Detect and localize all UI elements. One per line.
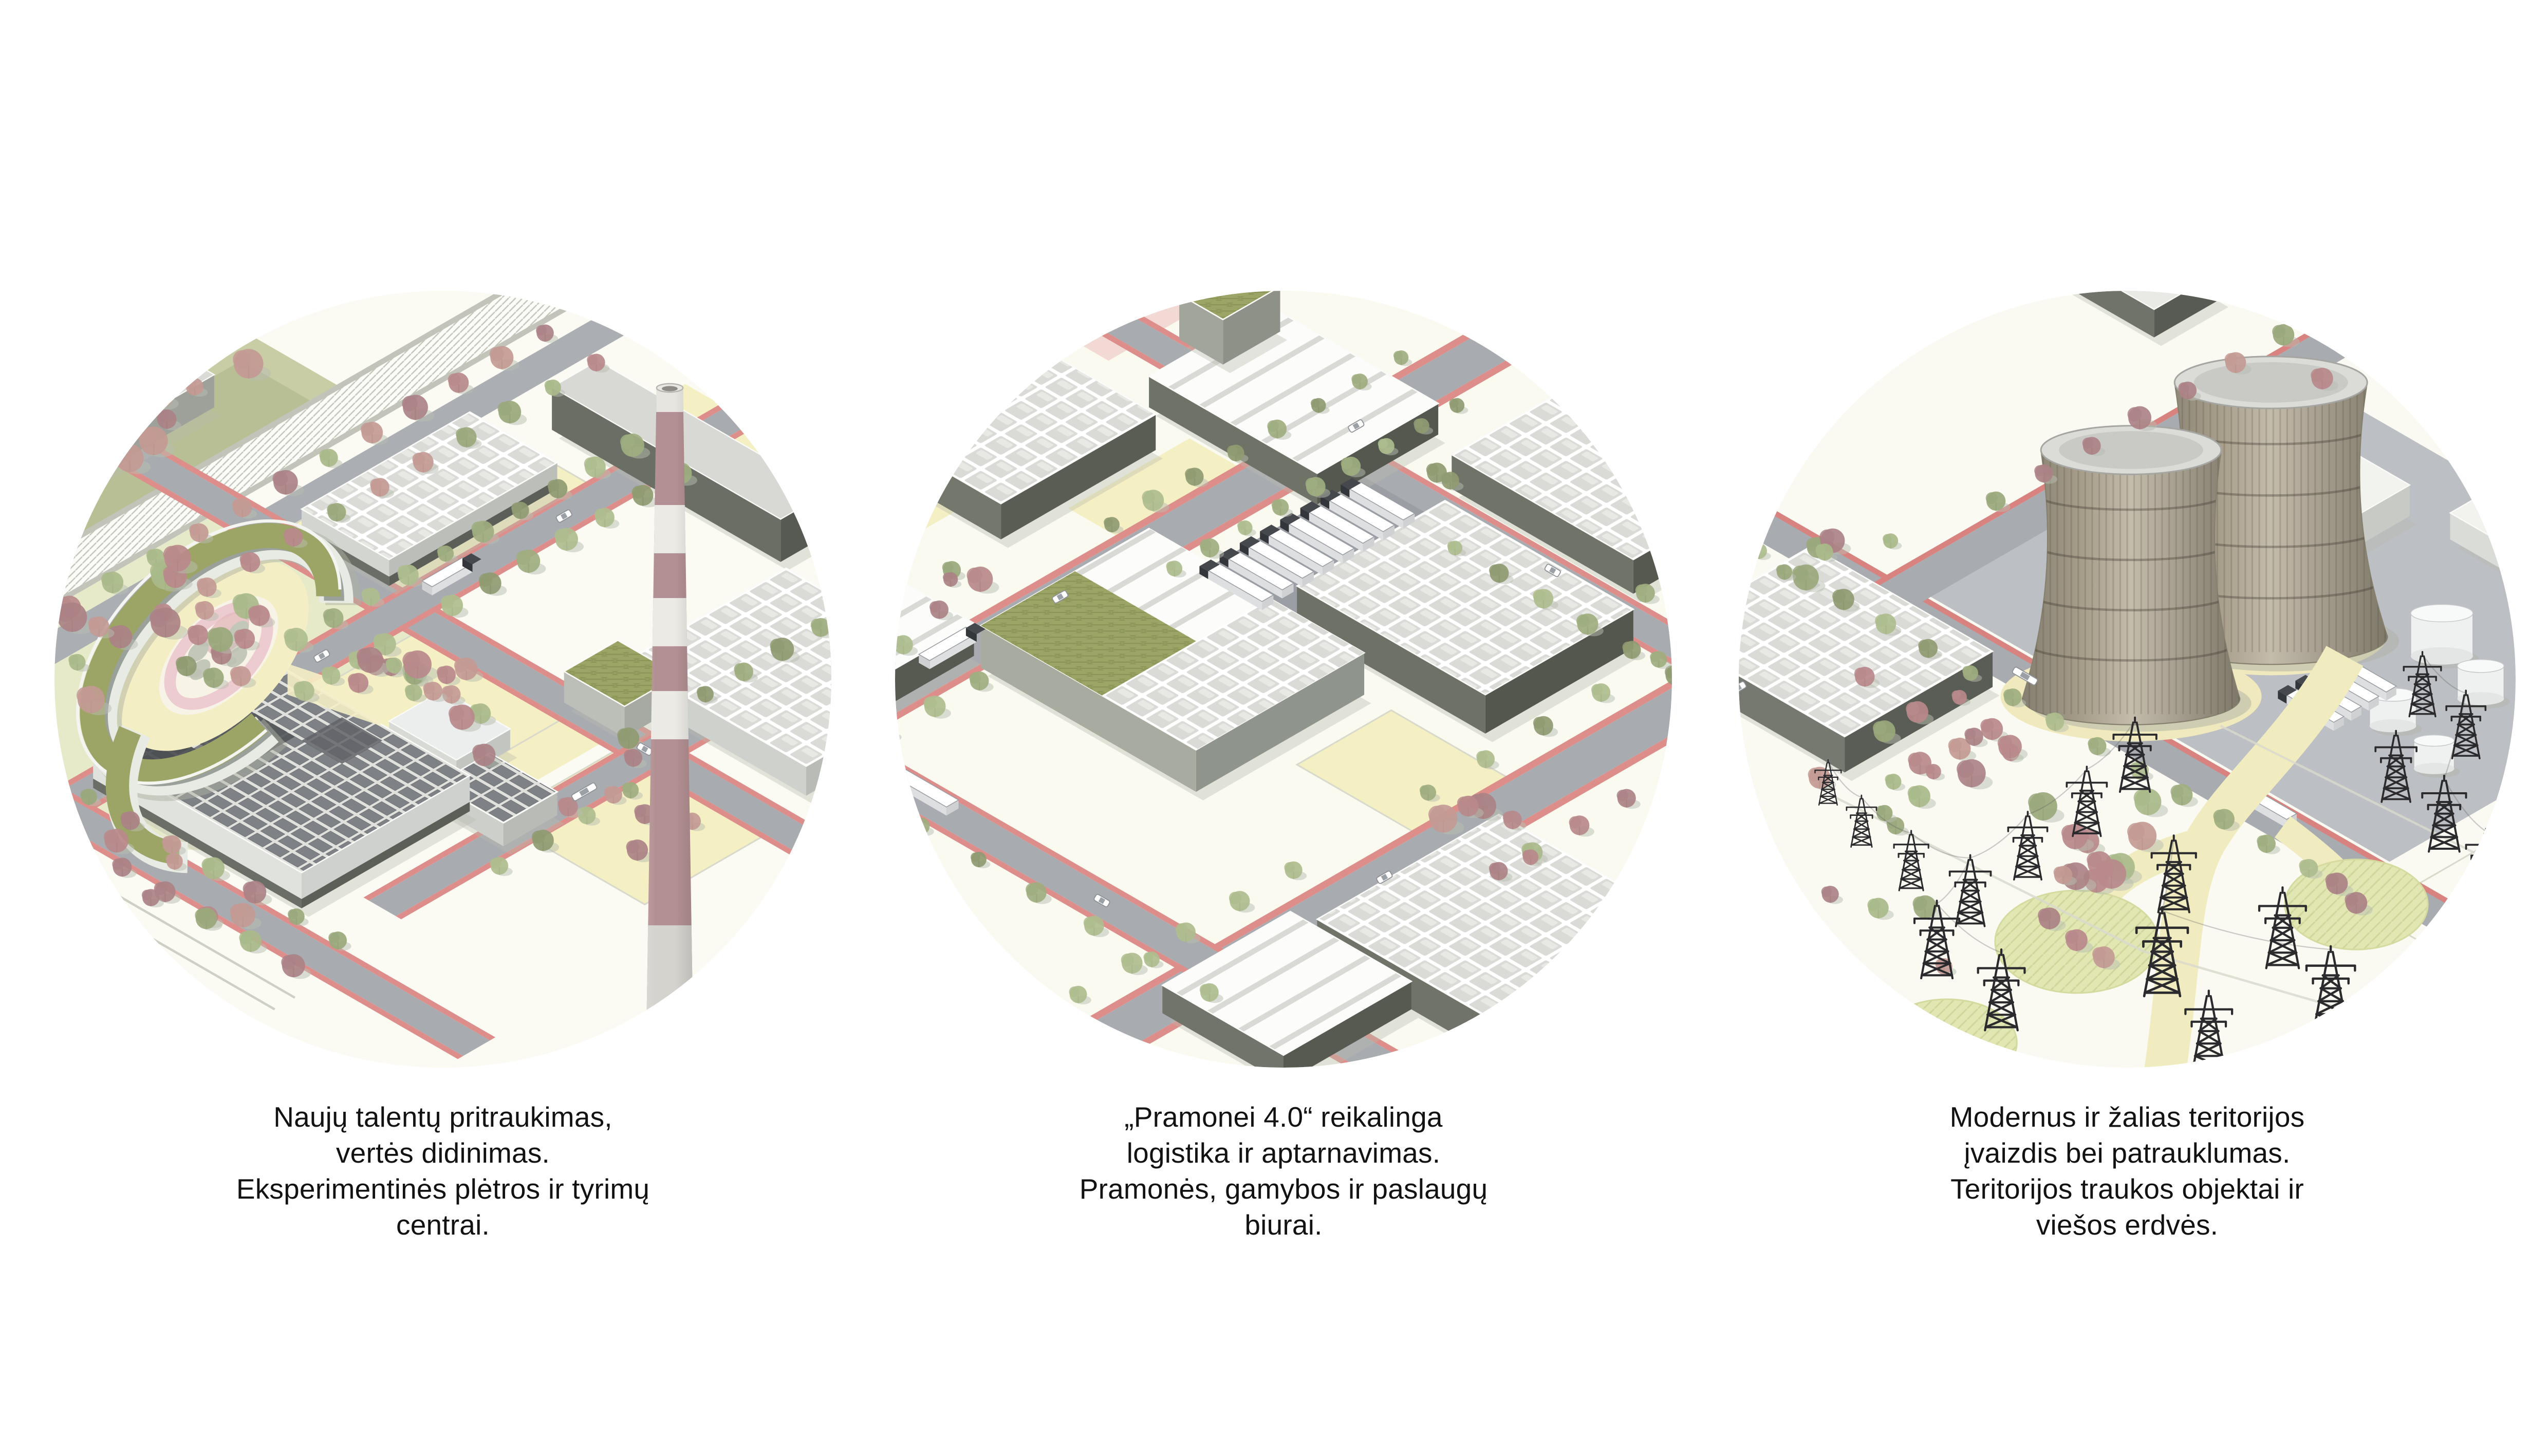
industry-logistics-image [895, 291, 1672, 1068]
research-campus-image [54, 291, 831, 1068]
industry-logistics-illustration [895, 291, 1672, 1068]
caption-green-territory: Modernus ir žalias teritorijos įvaizdis … [1739, 1099, 2516, 1243]
green-territory-illustration [1739, 291, 2516, 1068]
green-territory-image [1739, 291, 2516, 1068]
caption-industry-logistics: „Pramonei 4.0“ reikalinga logistika ir a… [895, 1099, 1672, 1243]
panel-research-campus: Naujų talentų pritraukimas, vertės didin… [54, 291, 831, 1243]
panel-industry-logistics: „Pramonei 4.0“ reikalinga logistika ir a… [895, 291, 1672, 1243]
caption-research-campus: Naujų talentų pritraukimas, vertės didin… [54, 1099, 831, 1243]
panel-green-territory: Modernus ir žalias teritorijos įvaizdis … [1739, 291, 2516, 1243]
research-campus-illustration [54, 291, 831, 1068]
